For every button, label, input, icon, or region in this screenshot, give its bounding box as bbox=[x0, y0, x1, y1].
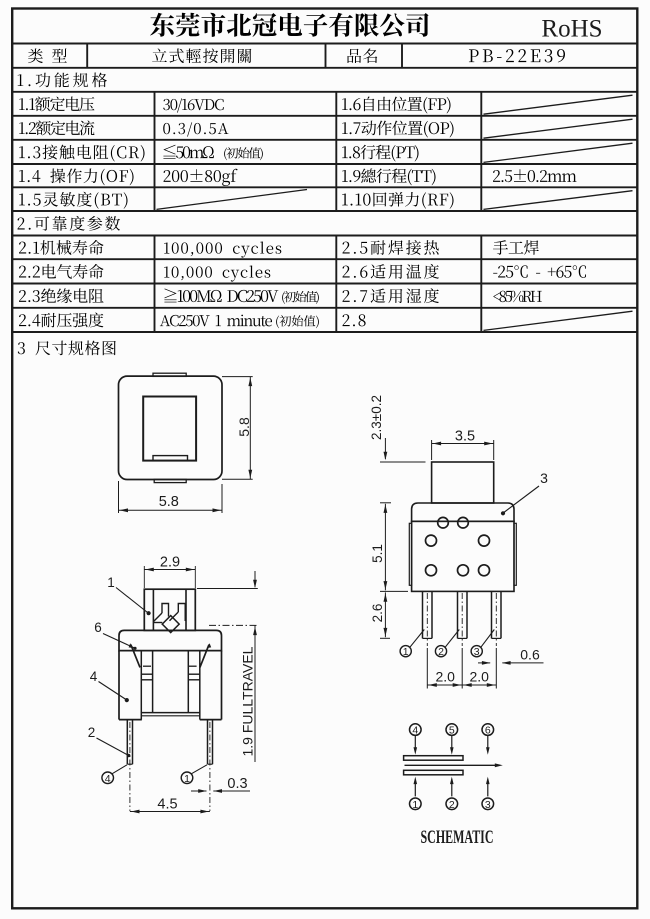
svg-text:2: 2 bbox=[449, 799, 455, 811]
svg-text:6: 6 bbox=[485, 725, 491, 737]
svg-text:3: 3 bbox=[540, 470, 548, 486]
svg-text:4: 4 bbox=[105, 773, 111, 785]
svg-text:2.3±0.2: 2.3±0.2 bbox=[369, 395, 384, 440]
svg-text:3: 3 bbox=[485, 799, 491, 811]
svg-text:2: 2 bbox=[88, 725, 96, 740]
svg-text:0.6: 0.6 bbox=[520, 647, 540, 663]
svg-text:1: 1 bbox=[184, 773, 190, 785]
svg-text:5.1: 5.1 bbox=[370, 544, 385, 563]
svg-text:1: 1 bbox=[412, 799, 418, 811]
svg-text:2.6: 2.6 bbox=[370, 604, 385, 623]
svg-text:0.3: 0.3 bbox=[227, 776, 247, 792]
svg-text:5.8: 5.8 bbox=[236, 417, 252, 437]
svg-text:2.9: 2.9 bbox=[160, 555, 180, 571]
svg-text:5.8: 5.8 bbox=[159, 494, 179, 510]
svg-text:1: 1 bbox=[403, 646, 409, 658]
svg-text:4: 4 bbox=[412, 725, 418, 737]
svg-text:2.0: 2.0 bbox=[435, 669, 455, 685]
svg-text:3.5: 3.5 bbox=[455, 429, 475, 445]
svg-text:1: 1 bbox=[107, 575, 115, 590]
svg-text:2.0: 2.0 bbox=[469, 669, 489, 685]
svg-text:RoHS: RoHS bbox=[541, 16, 602, 43]
svg-text:6: 6 bbox=[94, 620, 102, 635]
svg-text:4: 4 bbox=[90, 669, 98, 684]
svg-text:2: 2 bbox=[438, 646, 444, 658]
svg-text:5: 5 bbox=[449, 725, 455, 737]
svg-text:1.9 FULLTRAVEL: 1.9 FULLTRAVEL bbox=[240, 646, 256, 756]
svg-text:3: 3 bbox=[474, 646, 480, 658]
svg-text:4.5: 4.5 bbox=[157, 797, 177, 813]
svg-text:SCHEMATIC: SCHEMATIC bbox=[421, 827, 494, 848]
